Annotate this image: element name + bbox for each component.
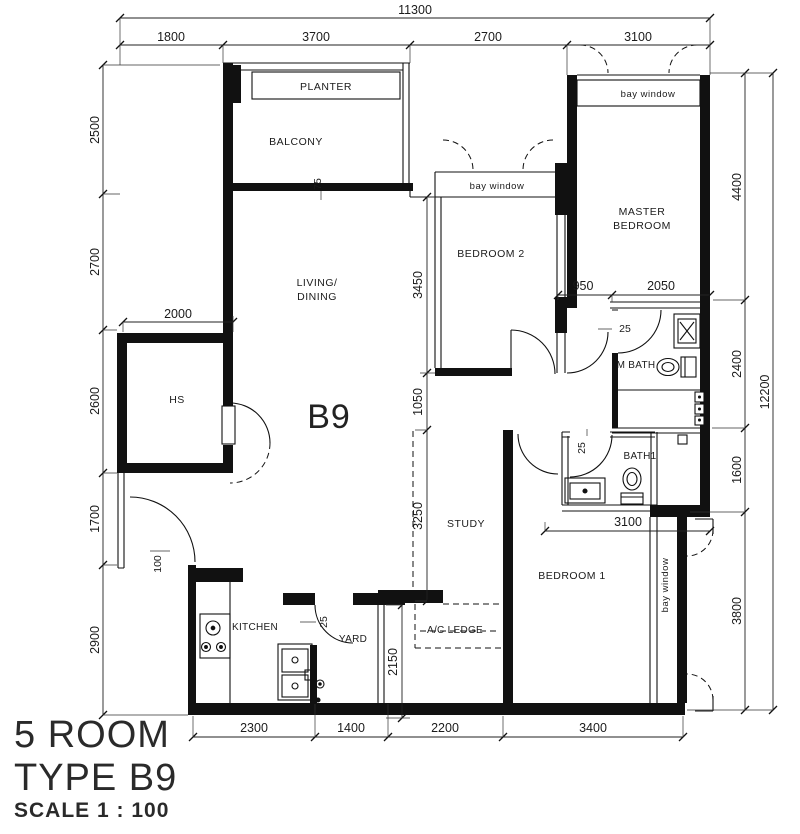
stove-icon	[200, 614, 230, 658]
dim-left-2900: 2900	[88, 626, 102, 654]
dim-inner-100: 100	[152, 555, 164, 573]
dim-inner-1050: 1050	[411, 388, 425, 416]
dim-right-4400: 4400	[730, 173, 744, 201]
dim-inner-3250: 3250	[411, 502, 425, 530]
dim-inner-25-mbath: 25	[619, 323, 631, 335]
room-label-master-bedroom-line2: BEDROOM	[613, 220, 671, 232]
dim-inner-3450: 3450	[411, 271, 425, 299]
dim-inner-75: 75	[312, 178, 324, 190]
mbath-basin-icon	[674, 314, 700, 348]
hs-door-leaf	[222, 406, 235, 444]
dim-inner-950: 950	[573, 279, 594, 293]
room-label-ac-ledge: A/C LEDGE	[427, 625, 483, 636]
dim-inner-2150: 2150	[386, 648, 400, 676]
fixtures	[200, 72, 704, 702]
floor-plan-page: 11300 1800 3700 2700 3100 2500 2700 2600…	[0, 0, 800, 834]
room-label-bath1: BATH1	[624, 451, 657, 462]
dim-right-2400: 2400	[730, 350, 744, 378]
dim-left-2700: 2700	[88, 248, 102, 276]
dim-bottom-3400: 3400	[579, 721, 607, 735]
room-label-mbath: M BATH	[617, 360, 656, 371]
dim-left-2600: 2600	[88, 387, 102, 415]
dim-top-3700: 3700	[302, 30, 330, 44]
dim-right-total-12200: 12200	[758, 375, 772, 410]
dim-right-1600: 1600	[730, 456, 744, 484]
room-label-bedroom2: BEDROOM 2	[457, 248, 525, 260]
dim-bottom-1400: 1400	[337, 721, 365, 735]
room-label-master-bedroom-line1: MASTER	[619, 206, 666, 218]
dim-top-1800: 1800	[157, 30, 185, 44]
room-label-planter: PLANTER	[300, 81, 352, 93]
room-label-balcony: BALCONY	[269, 136, 323, 148]
mbath-toilet-icon	[657, 357, 696, 377]
room-label-bedroom1: BEDROOM 1	[538, 570, 606, 582]
dim-inner-25-yard: 25	[318, 616, 330, 628]
room-label-hs: HS	[169, 394, 185, 406]
room-labels: PLANTER BALCONY bay window bay window MA…	[169, 81, 675, 645]
dim-top-3100: 3100	[624, 30, 652, 44]
room-label-bay-window-mid: bay window	[470, 181, 525, 192]
title-block: 5 ROOM TYPE B9 SCALE 1 : 100	[14, 714, 177, 822]
dim-top-2700: 2700	[474, 30, 502, 44]
room-label-kitchen: KITCHEN	[232, 622, 278, 633]
room-label-living: LIVING/	[297, 277, 338, 289]
room-label-dining: DINING	[297, 291, 337, 303]
floor-plan-drawing: 11300 1800 3700 2700 3100 2500 2700 2600…	[0, 0, 800, 834]
bath1-basin-icon	[565, 478, 605, 503]
bath1-toilet-icon	[621, 468, 643, 504]
dim-bottom-2200: 2200	[431, 721, 459, 735]
dim-inner-3100: 3100	[614, 515, 642, 529]
plan-code-label: B9	[307, 398, 351, 436]
dim-inner-2000: 2000	[164, 307, 192, 321]
mbath-shelf-icon	[695, 392, 704, 425]
room-label-yard: YARD	[339, 634, 367, 645]
dim-right-3800: 3800	[730, 597, 744, 625]
dim-inner-25-bath1: 25	[576, 442, 588, 454]
dim-left-2500: 2500	[88, 116, 102, 144]
scale-label: SCALE 1 : 100	[14, 799, 169, 822]
dim-left-1700: 1700	[88, 505, 102, 533]
sink-icon	[278, 644, 315, 700]
door-stop	[678, 435, 687, 444]
dim-inner-2050: 2050	[647, 279, 675, 293]
unit-type-label: 5 ROOM	[14, 714, 170, 756]
room-label-bay-window-top: bay window	[621, 89, 676, 100]
room-label-study: STUDY	[447, 518, 485, 530]
floor-trap-icon	[316, 680, 324, 702]
dim-overall-width: 11300	[398, 3, 432, 17]
dim-bottom-2300: 2300	[240, 721, 268, 735]
unit-type-code: TYPE B9	[14, 757, 177, 799]
room-label-bay-window-right: bay window	[660, 558, 671, 613]
